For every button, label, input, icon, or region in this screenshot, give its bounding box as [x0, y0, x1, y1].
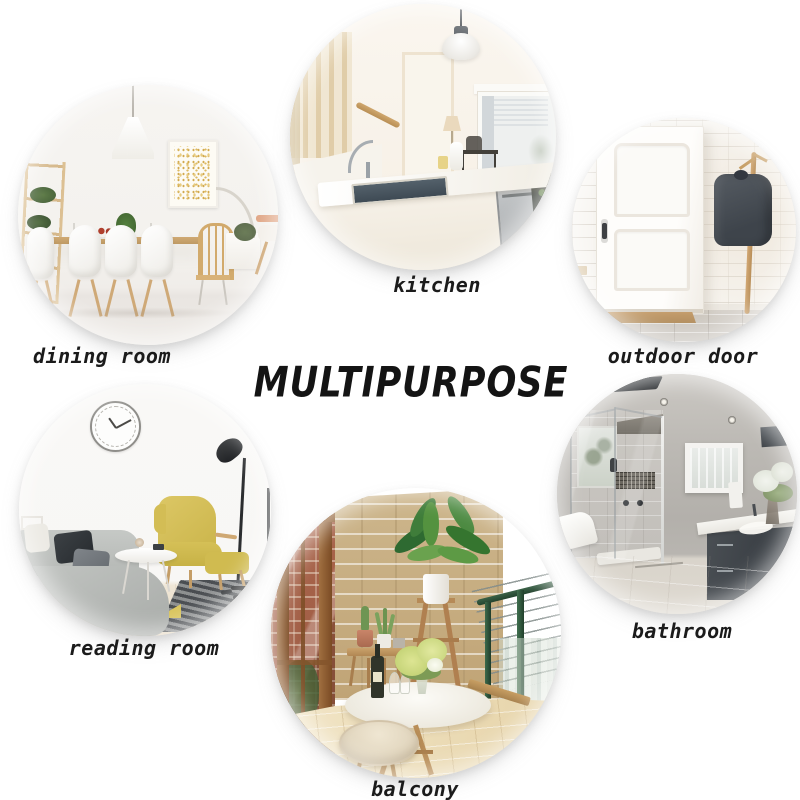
- bathroom-photo: [557, 374, 797, 614]
- lounge-chair: [256, 215, 278, 279]
- curtain: [482, 96, 494, 172]
- art-gold-speckles: [174, 146, 212, 202]
- balcony-photo: [271, 488, 561, 778]
- bench-leg: [367, 658, 370, 688]
- reading-room-label: reading room: [69, 636, 220, 660]
- white-chair: [139, 225, 175, 319]
- pendant-cord: [132, 85, 134, 119]
- mirror-band: [760, 425, 797, 448]
- chair-leg: [222, 280, 227, 305]
- wood-block: [572, 266, 587, 275]
- dining-room-label: dining room: [33, 344, 171, 368]
- white-chair: [103, 225, 139, 319]
- wall-clock: [90, 401, 141, 452]
- outdoor-door-label: outdoor door: [608, 344, 759, 368]
- recessed-light: [728, 416, 736, 424]
- chair-leg: [255, 241, 268, 274]
- lounge-back-bar: [256, 215, 278, 222]
- cactus: [361, 606, 369, 632]
- background-chair: [466, 136, 482, 150]
- door-panel: [614, 143, 690, 217]
- chair-leg: [189, 570, 192, 588]
- yellow-cup: [438, 156, 448, 169]
- terracotta-pot: [357, 630, 373, 647]
- chair-shell: [27, 227, 54, 279]
- white-chair: [67, 225, 103, 319]
- flower-bloom-white: [771, 462, 793, 482]
- door-panel: [614, 229, 690, 291]
- floor-lamp-head: [212, 434, 246, 467]
- towel: [728, 482, 743, 509]
- handrail: [355, 101, 400, 128]
- chair-shell: [69, 225, 101, 277]
- pendant-lamp: [442, 33, 480, 60]
- product-collage: MULTIPURPOSE dining room kitchen outdoor…: [0, 0, 800, 800]
- door-top-rail: [271, 510, 335, 522]
- dining-room-photo: [18, 85, 278, 345]
- white-jug: [450, 142, 463, 170]
- pendant-lamp: [112, 117, 154, 159]
- blinds: [494, 96, 548, 126]
- potted-greenery: [234, 223, 256, 241]
- camera: [153, 544, 164, 550]
- vanity-faucet: [752, 504, 757, 516]
- front-door: [596, 126, 704, 314]
- side-table-top: [115, 548, 177, 563]
- edge-pole: [267, 488, 270, 544]
- door-mullion: [277, 660, 332, 665]
- armrest-wood: [215, 532, 237, 539]
- balcony-label: balcony: [371, 777, 459, 800]
- kitchen-label: kitchen: [393, 273, 481, 297]
- cabinet-handle: [717, 544, 733, 546]
- decor-orb: [135, 538, 144, 547]
- table-leg: [147, 562, 149, 600]
- chair-shell: [141, 225, 173, 277]
- chair-shell: [105, 225, 137, 277]
- armchair-wing: [154, 504, 166, 534]
- jacket-collar: [734, 170, 748, 180]
- door-edge: [290, 24, 300, 174]
- white-knit-pillow: [24, 523, 51, 553]
- main-title: MULTIPURPOSE: [254, 358, 569, 407]
- chair-leg: [27, 280, 38, 318]
- yellow-ottoman: [205, 552, 249, 574]
- ladder-plant: [30, 187, 56, 203]
- corner-foliage: [523, 488, 561, 534]
- bottle-neck: [375, 644, 380, 658]
- background-desk: [460, 150, 498, 154]
- recessed-light: [660, 398, 668, 406]
- faucet-base: [366, 162, 370, 178]
- kitchen-photo: [290, 4, 556, 270]
- outdoor-door-photo: [572, 118, 796, 342]
- doormat: [602, 312, 696, 323]
- wine-glass: [389, 672, 400, 694]
- chair-leg: [275, 241, 278, 275]
- ceiling-vent: [601, 376, 663, 393]
- hanging-jacket: [714, 174, 772, 246]
- bathroom-label: bathroom: [632, 619, 732, 643]
- lounge-cushion: [258, 225, 278, 241]
- flower-bloom-white: [427, 658, 443, 672]
- floor-shadow: [38, 307, 238, 319]
- art-frame: [168, 140, 218, 208]
- chair-leg: [198, 280, 203, 305]
- stool-seat: [339, 720, 419, 766]
- plant-leaf: [423, 502, 439, 546]
- reading-room-photo: [19, 384, 271, 636]
- lamp-shade: [443, 116, 461, 131]
- plant-pot: [423, 574, 449, 604]
- door-handle: [602, 223, 607, 239]
- floor-tile-lines: [557, 556, 797, 614]
- bottle-label: [373, 672, 382, 682]
- flower-vase: [765, 500, 780, 524]
- floor-lamp-base: [231, 586, 257, 590]
